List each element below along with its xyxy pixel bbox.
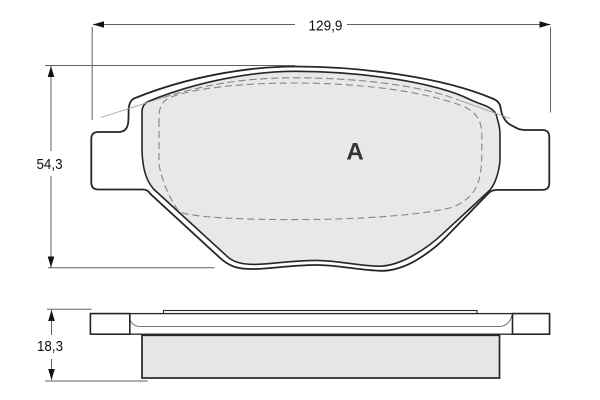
svg-text:A: A xyxy=(346,139,363,166)
svg-text:18,3: 18,3 xyxy=(37,338,63,355)
svg-text:54,3: 54,3 xyxy=(37,156,63,173)
svg-text:129,9: 129,9 xyxy=(309,18,343,35)
